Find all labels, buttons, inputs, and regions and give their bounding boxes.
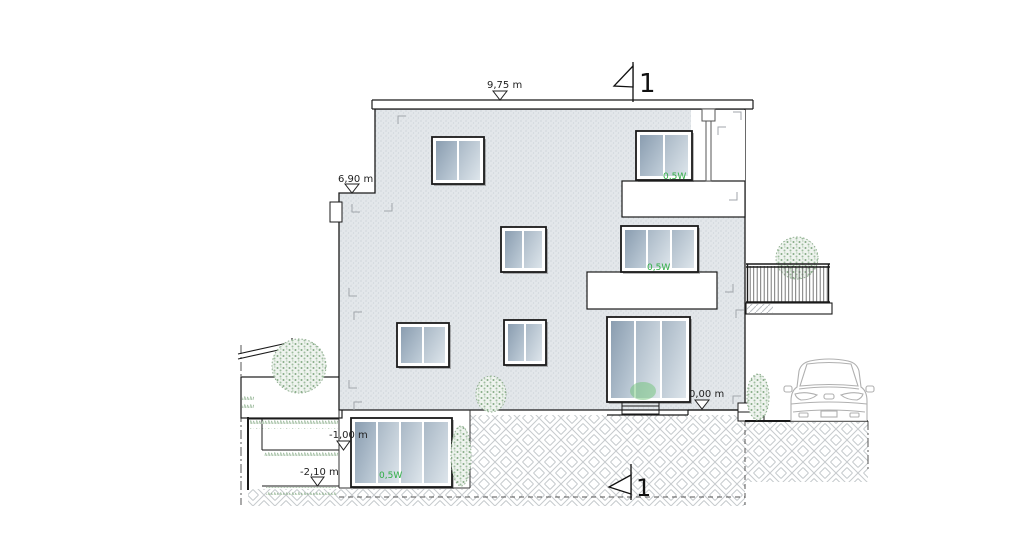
hatch-center [470,415,745,506]
post-cap [702,109,715,121]
window-attic: 0,5W [636,131,694,182]
level-triangle-upper [345,184,359,193]
label-basement-level: -2,10 m [300,467,339,478]
car-body [791,359,867,421]
hatch-right [745,421,868,482]
loggia-parapet [587,272,717,309]
balcony-balusters [747,266,829,302]
car-mirror-left [784,386,792,392]
attic-terrace-parapet [622,181,745,217]
window-gf-left [397,323,451,369]
section-flag-icon [614,66,633,87]
small-plant [242,396,254,410]
window-gf-middle [504,320,548,367]
window-2f-middle [501,227,548,274]
window-tag-attic: 0,5W [663,172,686,182]
car [784,359,874,421]
window-tag-2f: 0,5W [647,263,670,273]
bush-right-corner [747,374,769,420]
roof-edge [372,100,753,109]
bush-garden-left [272,339,326,393]
post-shaft [706,121,711,181]
attic-terrace-recess [691,110,745,181]
window-basement: 0,5W [351,418,454,489]
window-tag-basement: 0,5W [379,471,402,481]
interior-plant [630,382,656,400]
balcony-slab-hatch [747,304,773,313]
drawing-svg: 0,5W 0,5W [0,0,1018,541]
label-upper-level: 6,90 m [338,174,373,185]
elevation-drawing: 0,5W 0,5W [0,0,1018,541]
level-triangle-basement [311,477,324,486]
section-marker-top: 1 [614,62,656,102]
level-triangle-roof [493,91,507,100]
bush-basement [451,426,471,486]
car-mirror-right [866,386,874,392]
wall-vent-box [330,202,342,222]
window-2f-right: 0,5W [621,226,700,274]
grass-band-2 [264,451,338,459]
bush-facade [476,376,506,412]
balcony-right [746,264,832,314]
section-number-top: 1 [639,69,656,99]
window-gf-large [607,317,692,404]
label-roof-level: 9,75 m [487,80,522,91]
window-2f-left [432,137,486,186]
grass-band-1 [250,420,338,429]
label-ground-level: 0,00 m [689,389,724,400]
section-number-bottom: 1 [636,474,651,502]
ground-section-hatch [248,415,868,506]
label-terrace-level: -1,00 m [329,430,368,441]
grass-band-3 [266,487,336,495]
